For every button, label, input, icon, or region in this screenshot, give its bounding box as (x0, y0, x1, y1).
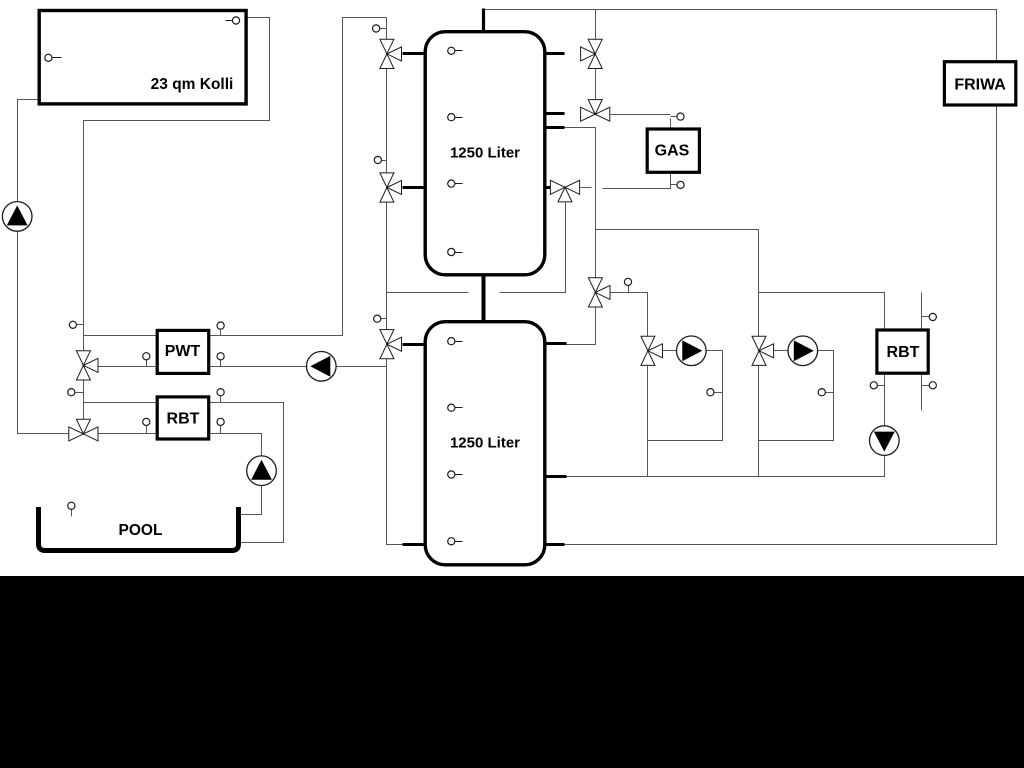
svg-text:FRIWA: FRIWA (954, 76, 1006, 93)
svg-text:PWT: PWT (165, 343, 201, 360)
svg-text:GAS: GAS (655, 143, 690, 160)
svg-text:1250 Liter: 1250 Liter (450, 145, 520, 162)
svg-text:1250 Liter: 1250 Liter (450, 435, 520, 452)
svg-text:23 qm Kolli: 23 qm Kolli (151, 76, 234, 93)
svg-text:RBT: RBT (167, 411, 200, 428)
svg-text:RBT: RBT (887, 344, 920, 361)
svg-text:POOL: POOL (119, 522, 163, 539)
